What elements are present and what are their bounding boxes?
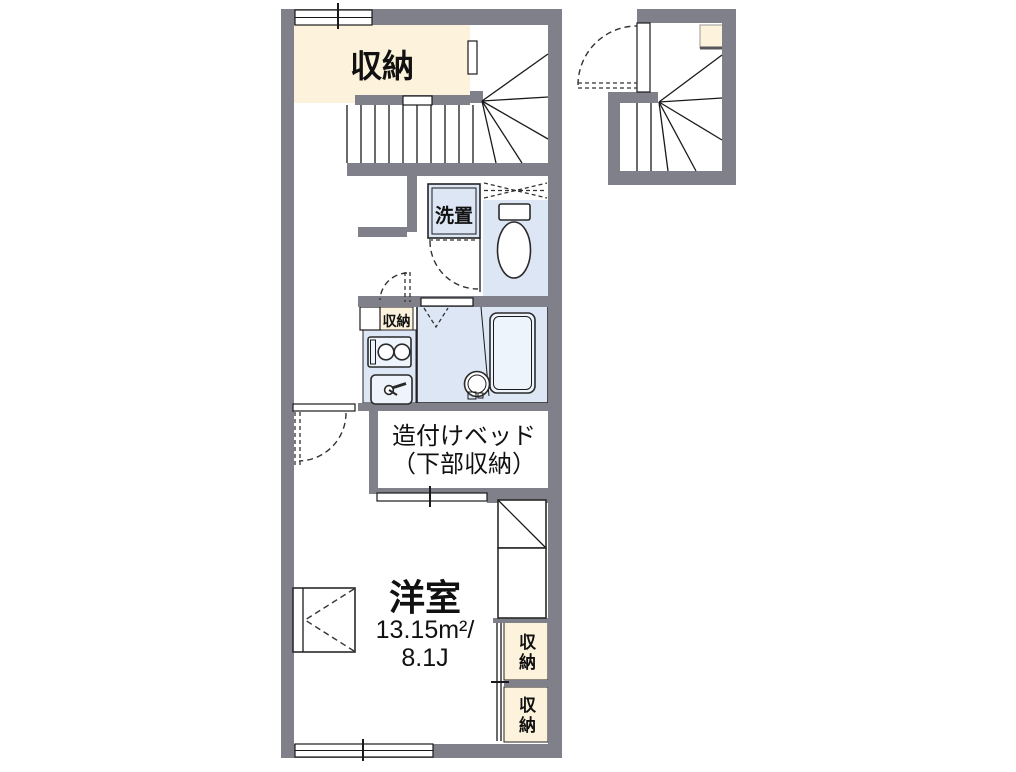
wall-left [281, 9, 294, 758]
bed-label-line2: （下部収納） [378, 451, 550, 479]
wall-storage-divider [504, 680, 548, 687]
entry-fan-line [659, 102, 696, 171]
floor-plan: 収納 洗置 収納 造付けベッド （下部収納） 洋室 13.15m²/ 8.1J … [0, 0, 1016, 772]
entry-wall-left [608, 92, 620, 185]
closet-top-label: 収納 [294, 41, 470, 87]
storage-right-lower-label: 収納 [517, 696, 534, 736]
stair-fan [482, 54, 548, 163]
stove-burner-left [378, 344, 394, 360]
bath-lintel [421, 298, 473, 306]
toilet-icon [498, 204, 531, 278]
wall-corridor-vert [407, 176, 417, 232]
room-name-label: 洋室 [340, 579, 510, 617]
wall-bed-left [369, 411, 378, 488]
room-door-lintel [293, 404, 355, 411]
entry-door-swing [578, 26, 637, 88]
laundry-label: 洗置 [428, 201, 480, 228]
entry-wall-top [637, 9, 736, 23]
stove-burner-right [394, 344, 410, 360]
storage-right-upper-label: 収納 [517, 633, 534, 673]
toilet-door-swing [429, 238, 480, 292]
entry-fan-line [659, 98, 722, 102]
bed-label-line1: 造付けベッド [378, 423, 550, 451]
entry-fan-line [659, 102, 668, 171]
room-area-label: 13.15m²/ [340, 617, 510, 643]
bed-window [377, 493, 487, 501]
toilet-window [483, 181, 548, 200]
wall-stair-corner [470, 91, 483, 103]
entry-fan-line [659, 102, 722, 140]
closet-small-label: 収納 [379, 311, 414, 331]
entry-wall-right [722, 9, 736, 185]
stair-top-opening [403, 96, 432, 105]
wall-right [548, 9, 562, 758]
closet-small-left-cell [360, 307, 380, 330]
entry-fan-line [659, 55, 722, 102]
entry-wall-corner [608, 92, 658, 103]
wall-stair-bottom [347, 163, 548, 176]
room-size-label: 8.1J [340, 645, 510, 671]
wall-corridor-horiz [358, 227, 407, 237]
entry-wall-bottom [608, 171, 736, 185]
bathtub-icon [490, 313, 535, 393]
stair-treads [347, 105, 473, 163]
room-door-swing [295, 412, 346, 465]
entry-door-jamb [637, 23, 650, 92]
